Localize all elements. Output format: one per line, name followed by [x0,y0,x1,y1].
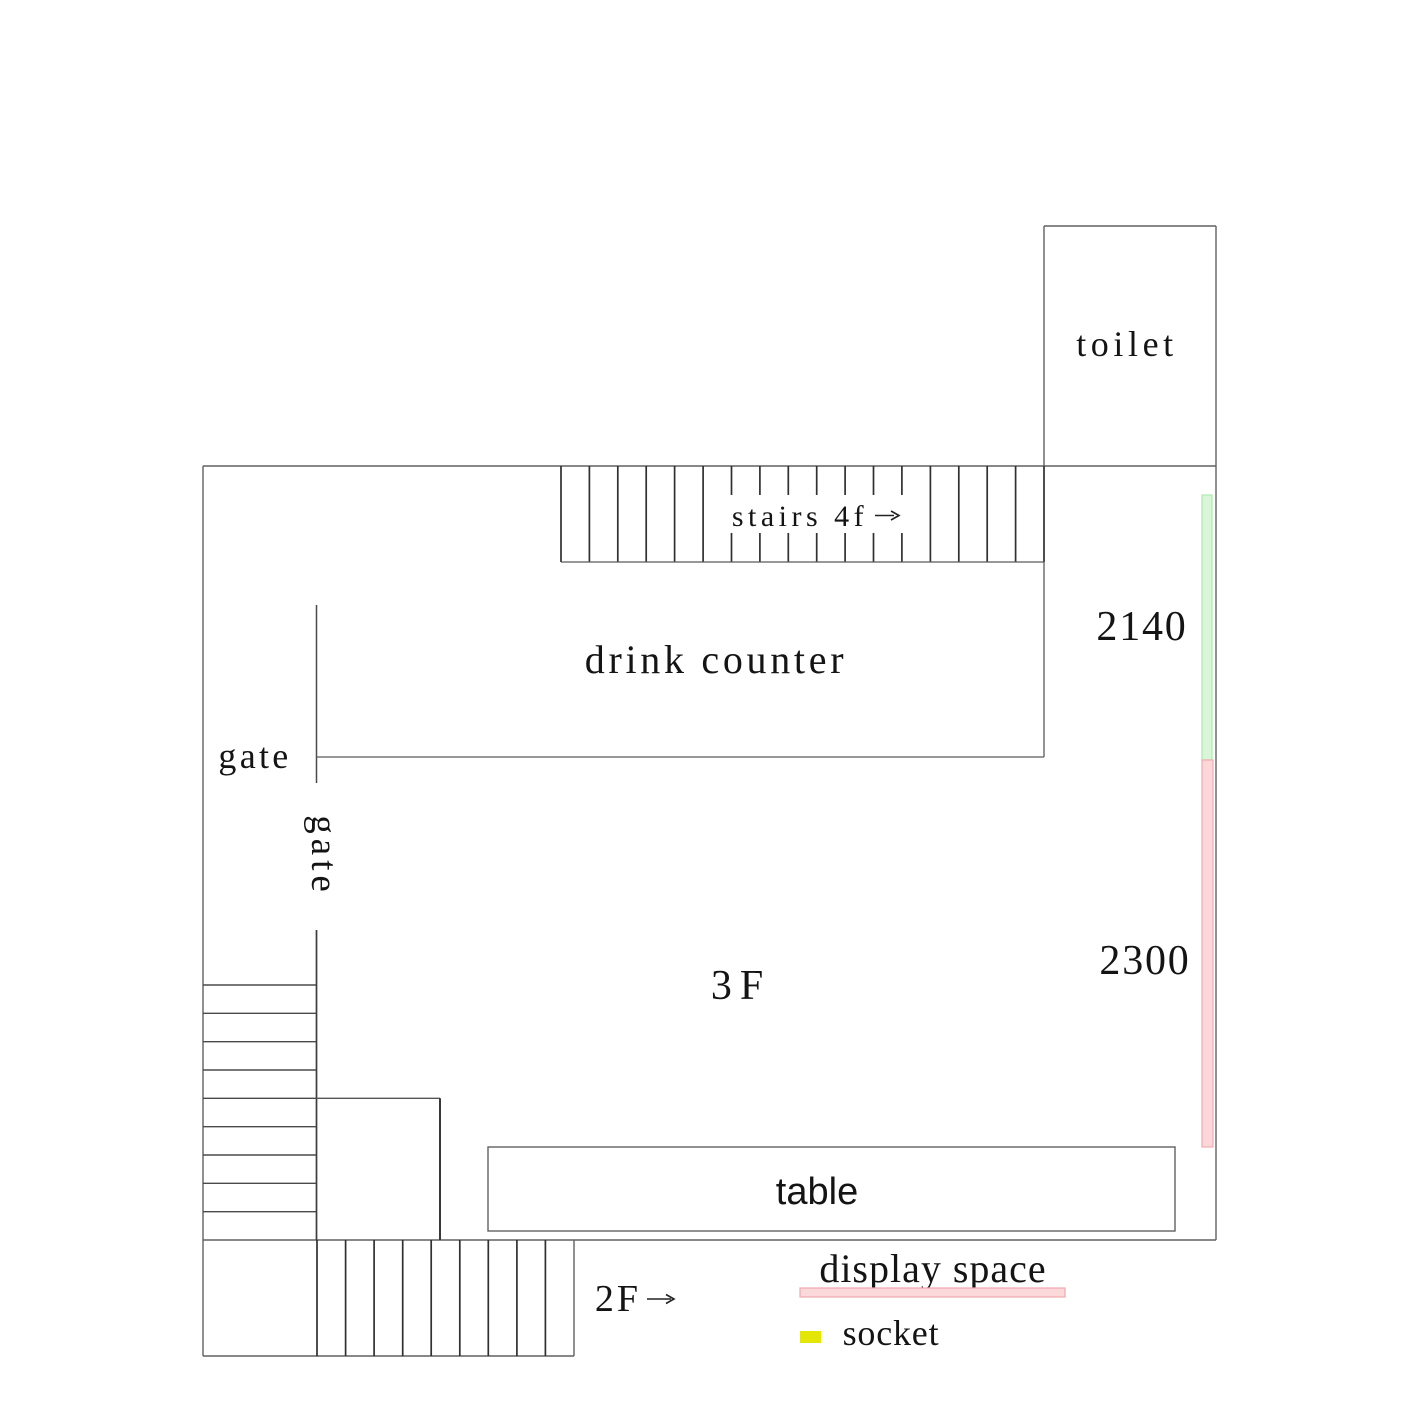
svg-text:2300: 2300 [1099,938,1190,984]
svg-text:gate: gate [218,736,291,776]
svg-text:toilet: toilet [1076,324,1178,364]
svg-text:socket: socket [843,1313,940,1353]
svg-text:2F: 2F [595,1278,641,1320]
svg-text:table: table [776,1171,858,1213]
svg-text:display space: display space [819,1246,1046,1291]
svg-text:2140: 2140 [1096,604,1187,650]
svg-text:gate: gate [303,815,344,897]
svg-text:stairs 4f: stairs 4f [732,500,868,533]
svg-text:drink counter: drink counter [585,637,847,682]
svg-text:3F: 3F [711,963,771,1009]
